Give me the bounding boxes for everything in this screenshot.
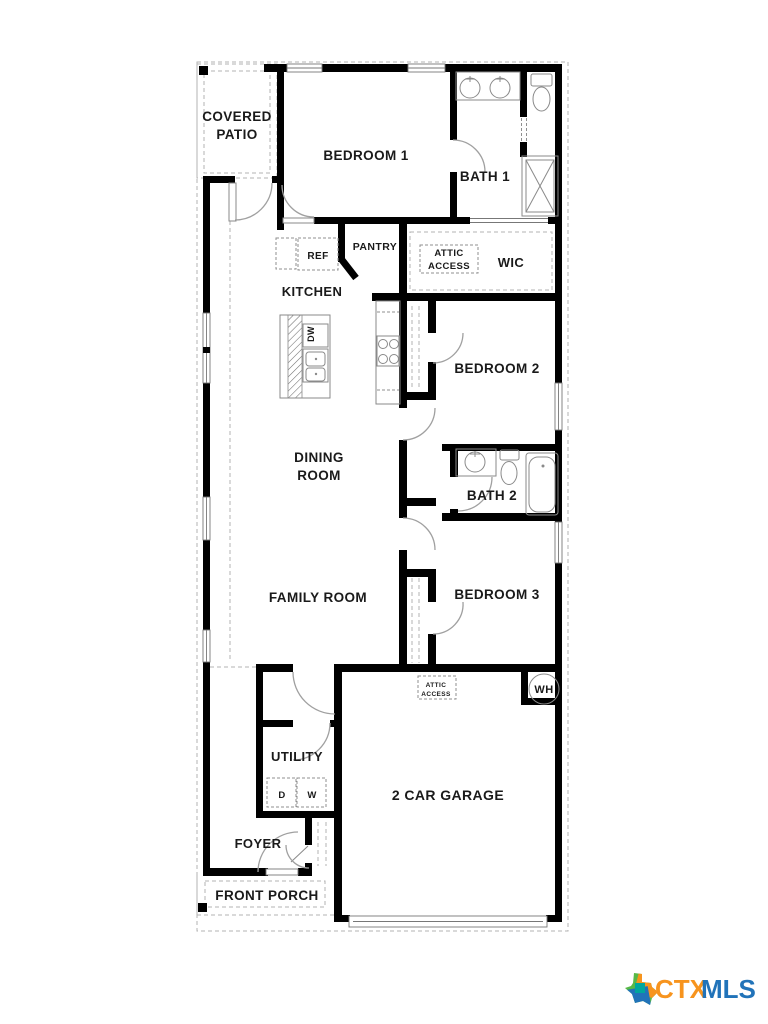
room-label-family-room: FAMILY ROOM <box>269 590 367 605</box>
label-dishwasher: DW <box>306 326 316 342</box>
bedroom2-door <box>433 333 463 363</box>
bedroom2-window <box>555 383 562 430</box>
bath2-toilet <box>500 450 519 485</box>
bath1-vanity <box>456 72 520 100</box>
label-washer: W <box>307 790 316 801</box>
pantry-angled-wall <box>342 260 356 278</box>
family-window-lower <box>203 630 210 662</box>
patio-post <box>199 66 208 75</box>
dining-window <box>203 313 210 383</box>
family-window-upper <box>203 497 210 540</box>
room-label-bath1: BATH 1 <box>460 169 510 184</box>
room-label-covered-patio-line1: COVERED <box>202 109 272 124</box>
bedroom1-window-left <box>287 64 322 72</box>
hall-door-upper <box>403 408 435 440</box>
bedroom1-door <box>282 185 314 223</box>
room-label-wic: WIC <box>498 255 525 270</box>
floor-plan: COVERED PATIO BEDROOM 1 BATH 1 REF PANTR… <box>0 0 768 1024</box>
room-label-front-porch: FRONT PORCH <box>215 888 318 903</box>
label-water-heater: WH <box>534 684 553 696</box>
room-label-garage: 2 CAR GARAGE <box>392 787 504 803</box>
bedroom3-window <box>555 522 562 563</box>
bedroom1-window-right <box>408 64 445 72</box>
room-labels: COVERED PATIO BEDROOM 1 BATH 1 REF PANTR… <box>202 109 553 903</box>
kitchen-sink <box>303 349 328 382</box>
family-hall-door <box>293 672 335 714</box>
bedroom3-door <box>433 602 463 634</box>
kitchen-counter <box>376 301 400 404</box>
logo-text-ctx: CTX <box>655 974 708 1004</box>
porch-post <box>198 903 207 912</box>
label-attic-access-line1: ATTIC <box>434 248 463 259</box>
floor-plan-page: COVERED PATIO BEDROOM 1 BATH 1 REF PANTR… <box>0 0 768 1024</box>
kitchen-island <box>280 315 330 398</box>
cooktop <box>377 336 399 366</box>
label-garage-attic-line1: ATTIC <box>426 682 447 689</box>
bath2-vanity <box>456 449 496 476</box>
room-label-utility: UTILITY <box>271 749 323 764</box>
island-bar-counter <box>288 315 302 398</box>
label-dryer: D <box>278 790 285 801</box>
bath2-tub <box>526 453 558 515</box>
room-label-covered-patio-line2: PATIO <box>216 127 257 142</box>
room-label-bath2: BATH 2 <box>467 488 517 503</box>
room-label-pantry: PANTRY <box>353 241 397 253</box>
label-refrigerator: REF <box>307 251 328 262</box>
room-label-kitchen: KITCHEN <box>282 284 343 299</box>
room-label-bedroom1: BEDROOM 1 <box>323 148 408 163</box>
patio-door <box>229 183 272 221</box>
logo-text-mls: MLS <box>701 974 756 1004</box>
room-label-dining-line2: ROOM <box>297 468 341 483</box>
bath1-shower <box>522 156 558 216</box>
room-label-bedroom2: BEDROOM 2 <box>454 361 539 376</box>
room-label-bedroom3: BEDROOM 3 <box>454 587 539 602</box>
garage-door <box>349 916 547 927</box>
front-door-threshold <box>266 869 298 875</box>
toilet-room-opening <box>522 118 527 141</box>
ctxmls-logo: CTX MLS <box>624 968 756 1010</box>
hall-door-lower <box>403 518 435 550</box>
room-label-foyer: FOYER <box>235 836 282 851</box>
label-garage-attic-line2: ACCESS <box>421 691 451 698</box>
bath1-toilet <box>531 74 552 111</box>
bath1-door <box>453 140 485 172</box>
label-attic-access-line2: ACCESS <box>428 261 470 272</box>
wic-cased-opening <box>470 219 548 223</box>
room-label-dining-line1: DINING <box>294 450 344 465</box>
fixtures <box>267 72 559 807</box>
